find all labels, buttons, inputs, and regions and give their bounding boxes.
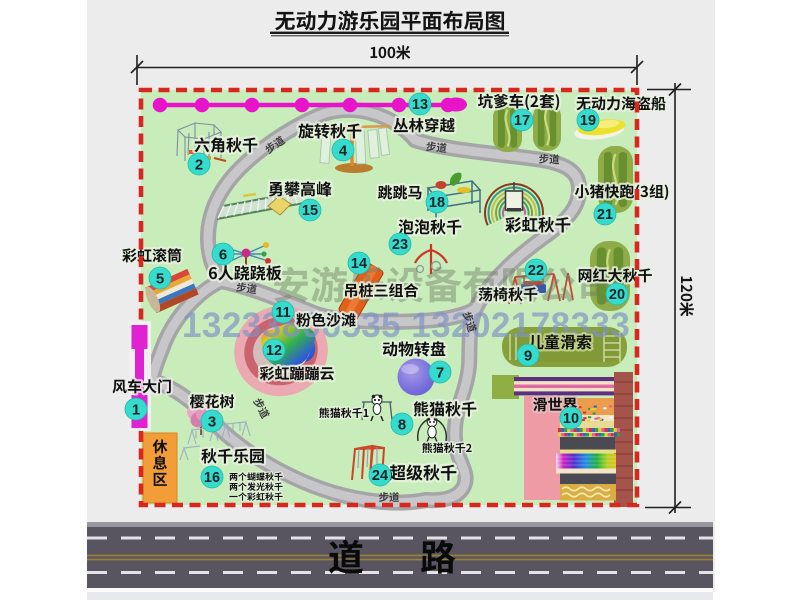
svg-text:15: 15 [302, 203, 318, 219]
svg-text:24: 24 [372, 468, 388, 484]
svg-text:19: 19 [580, 113, 596, 129]
svg-text:9: 9 [524, 347, 532, 364]
svg-text:1: 1 [132, 401, 140, 418]
svg-text:13: 13 [412, 97, 428, 113]
svg-text:3: 3 [208, 413, 216, 430]
svg-text:17: 17 [514, 113, 530, 129]
svg-text:11: 11 [275, 305, 290, 321]
svg-text:10: 10 [563, 411, 579, 427]
svg-text:22: 22 [528, 263, 544, 279]
svg-text:14: 14 [351, 256, 367, 272]
svg-text:12: 12 [266, 343, 282, 359]
svg-text:20: 20 [609, 287, 625, 303]
svg-text:8: 8 [398, 416, 406, 433]
svg-text:18: 18 [429, 195, 445, 211]
svg-text:5: 5 [156, 270, 164, 287]
svg-text:6: 6 [219, 246, 227, 263]
svg-text:2: 2 [195, 156, 203, 173]
svg-text:16: 16 [204, 470, 220, 486]
svg-text:23: 23 [392, 237, 408, 253]
svg-text:21: 21 [597, 207, 613, 223]
svg-text:4: 4 [339, 142, 348, 159]
svg-text:7: 7 [436, 364, 444, 381]
